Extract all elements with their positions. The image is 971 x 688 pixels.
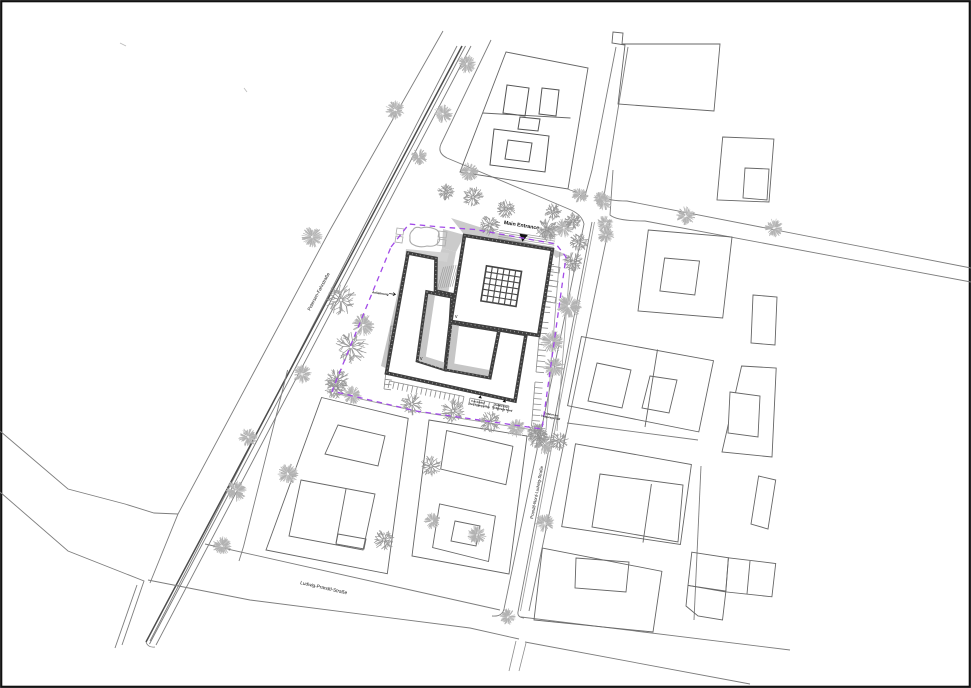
svg-text:i: i: [390, 371, 391, 376]
